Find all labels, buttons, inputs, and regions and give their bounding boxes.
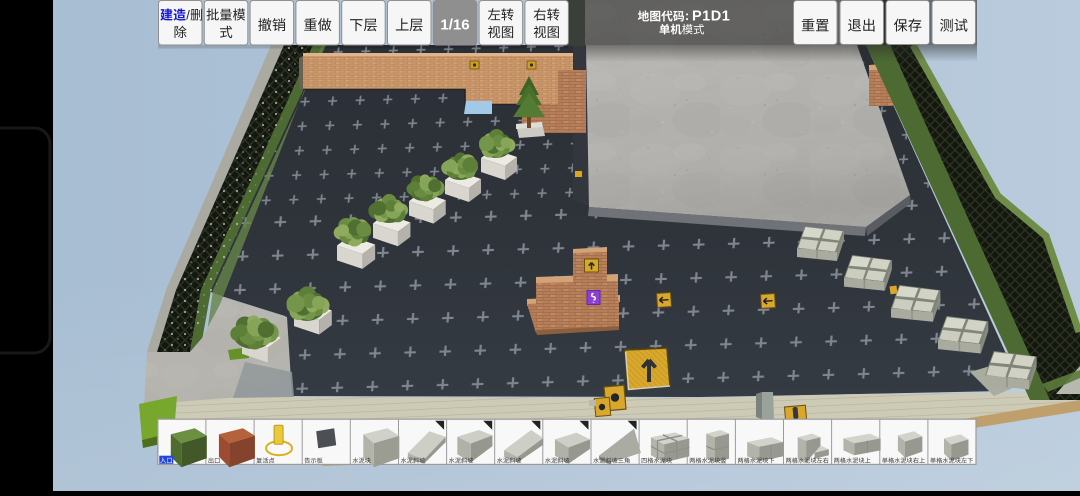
svg-text::: : — [685, 8, 689, 23]
svg-text:1/16: 1/16 — [440, 17, 469, 34]
svg-text:/: / — [186, 8, 190, 23]
svg-text:P1D1: P1D1 — [692, 9, 730, 25]
